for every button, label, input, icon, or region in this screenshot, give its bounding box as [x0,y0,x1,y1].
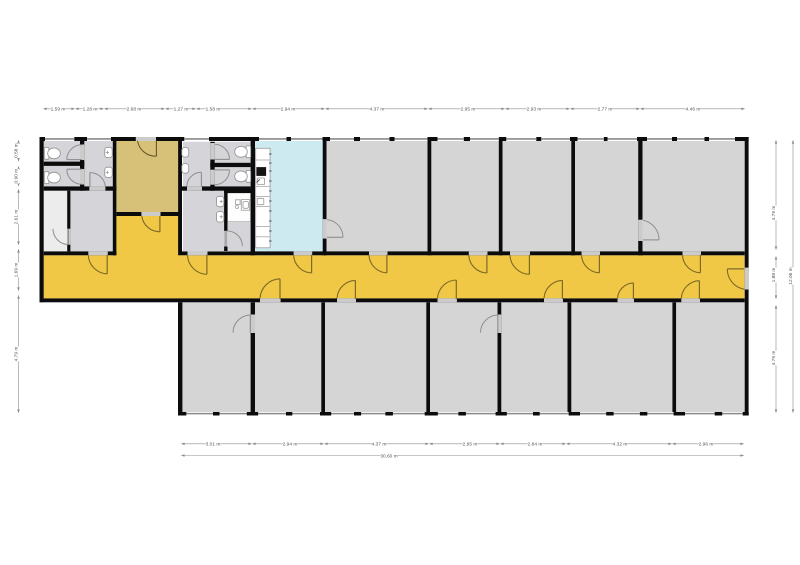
svg-text:4.37 m: 4.37 m [372,442,387,448]
svg-text:2.95 m: 2.95 m [463,442,478,448]
svg-text:4.37 m: 4.37 m [370,107,385,113]
svg-text:2.95 m: 2.95 m [461,107,476,113]
svg-text:2.77 m: 2.77 m [598,107,613,113]
svg-text:2.68 m: 2.68 m [127,107,142,113]
svg-text:2.96 m: 2.96 m [699,442,714,448]
svg-text:2.94 m: 2.94 m [283,442,298,448]
svg-text:2.93 m: 2.93 m [527,107,542,113]
svg-text:4.46 m: 4.46 m [686,107,701,113]
svg-text:30.60 m: 30.60 m [380,453,397,459]
svg-text:1.88 m: 1.88 m [771,268,777,283]
svg-text:12.06 m: 12.06 m [788,267,794,284]
svg-text:0.90 m: 0.90 m [14,169,20,184]
svg-text:2.84 m: 2.84 m [528,442,543,448]
svg-text:4.79 m: 4.79 m [771,206,777,221]
svg-text:2.61 m: 2.61 m [14,210,20,225]
svg-text:1.27 m: 1.27 m [174,107,189,113]
svg-text:3.01 m: 3.01 m [206,442,221,448]
svg-text:1.58 m: 1.58 m [206,107,221,113]
svg-text:1.28 m: 1.28 m [83,107,98,113]
svg-text:1.69 m: 1.69 m [14,263,20,278]
svg-text:4.79 m: 4.79 m [14,347,20,362]
svg-text:0.58 m: 0.58 m [14,143,20,158]
svg-text:4.79 m: 4.79 m [771,351,777,366]
svg-text:1.59 m: 1.59 m [51,107,66,113]
svg-text:4.32 m: 4.32 m [613,442,628,448]
svg-text:2.94 m: 2.94 m [281,107,296,113]
